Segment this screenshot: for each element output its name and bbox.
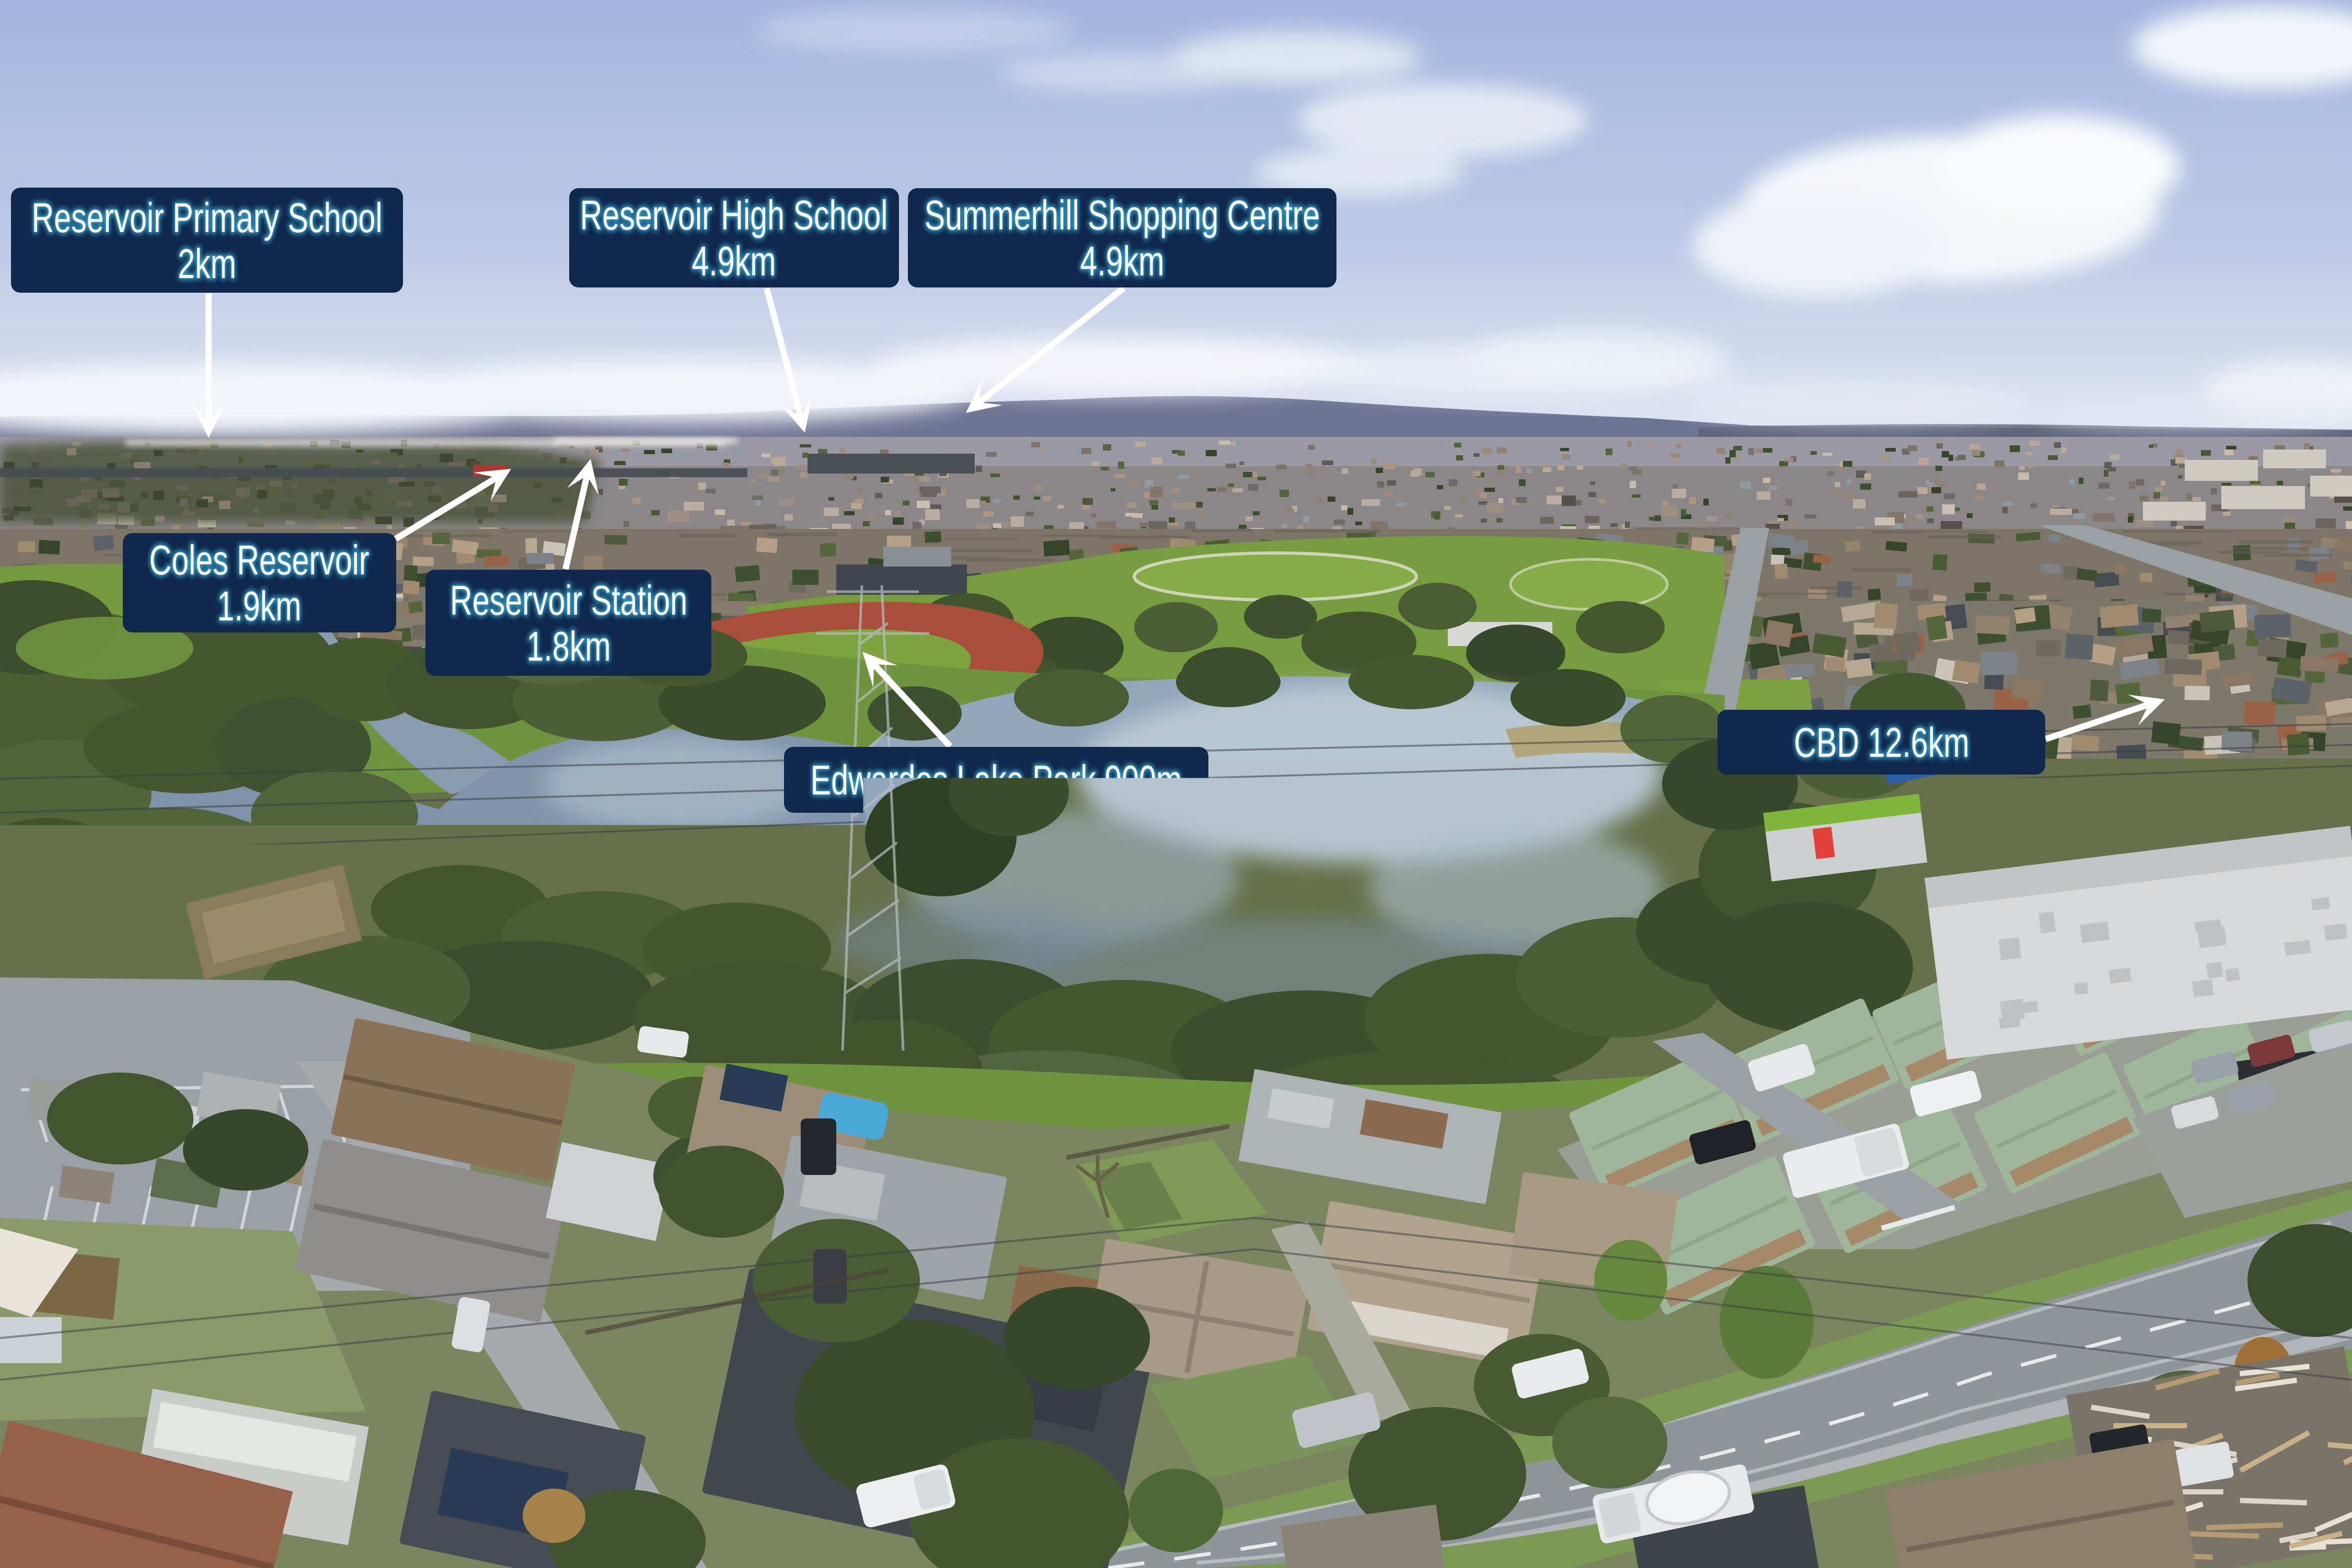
svg-text:8 Banbury Road, Reservoir: 8 Banbury Road, Reservoir <box>512 1244 911 1291</box>
svg-text:1.3km: 1.3km <box>1840 885 1924 932</box>
svg-text:Reservoir Primary School: Reservoir Primary School <box>32 194 383 241</box>
svg-text:Reservoir West Primary: Reservoir West Primary <box>1720 795 2046 843</box>
svg-text:CBD 12.6km: CBD 12.6km <box>1794 719 1969 766</box>
svg-text:4.9km: 4.9km <box>691 237 776 284</box>
svg-text:Summerhill Shopping Centre: Summerhill Shopping Centre <box>925 191 1320 238</box>
svg-text:Reservoir High School: Reservoir High School <box>580 191 888 238</box>
svg-text:1.8km: 1.8km <box>526 622 610 670</box>
svg-text:Edwardes Lake Park 900m: Edwardes Lake Park 900m <box>811 756 1182 803</box>
svg-text:School: School <box>1836 840 1930 887</box>
svg-text:Reservoir Station: Reservoir Station <box>450 577 687 624</box>
svg-text:4.9km: 4.9km <box>1080 237 1164 284</box>
svg-text:Coles Reservoir: Coles Reservoir <box>149 536 369 583</box>
svg-text:1.9km: 1.9km <box>217 582 301 629</box>
svg-text:2km: 2km <box>178 240 236 287</box>
